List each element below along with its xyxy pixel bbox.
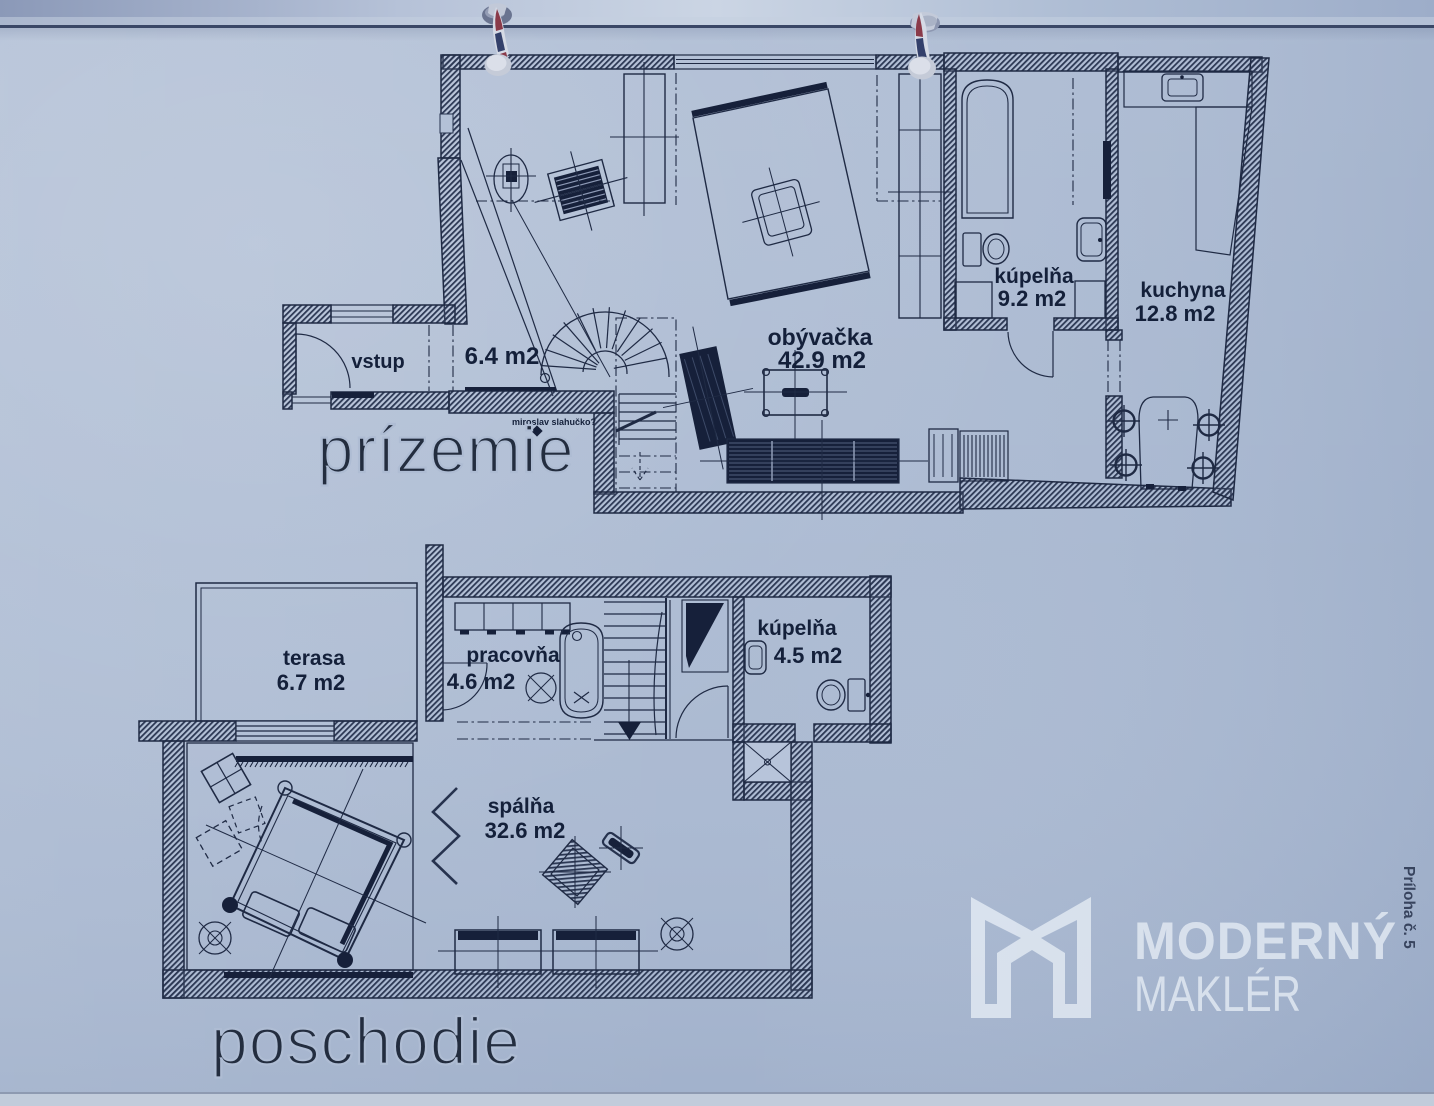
svg-text:6.4 m2: 6.4 m2	[465, 343, 540, 370]
svg-text:kúpelňa: kúpelňa	[757, 617, 837, 640]
svg-text:pracovňa: pracovňa	[466, 644, 560, 667]
svg-text:42.9 m2: 42.9 m2	[778, 347, 866, 374]
svg-text:6.7 m2: 6.7 m2	[277, 670, 346, 695]
svg-text:spálňa: spálňa	[488, 795, 555, 818]
svg-text:4.6 m2: 4.6 m2	[447, 669, 516, 694]
svg-text:poschodie: poschodie	[211, 1004, 521, 1078]
svg-text:12.8 m2: 12.8 m2	[1135, 301, 1216, 326]
svg-text:4.5 m2: 4.5 m2	[774, 643, 843, 668]
svg-text:vstup: vstup	[351, 351, 404, 373]
svg-text:terasa: terasa	[283, 647, 345, 670]
svg-text:MODERNÝ: MODERNÝ	[1134, 911, 1397, 971]
svg-text:kúpelňa: kúpelňa	[994, 265, 1074, 288]
svg-text:9.2 m2: 9.2 m2	[998, 286, 1067, 311]
svg-text:kuchyna: kuchyna	[1140, 279, 1226, 302]
svg-text:MAKLÉR: MAKLÉR	[1134, 966, 1301, 1022]
svg-text:Príloha č. 5: Príloha č. 5	[1400, 866, 1417, 949]
svg-text:prízemie: prízemie	[317, 413, 574, 486]
svg-text:32.6 m2: 32.6 m2	[485, 818, 566, 843]
